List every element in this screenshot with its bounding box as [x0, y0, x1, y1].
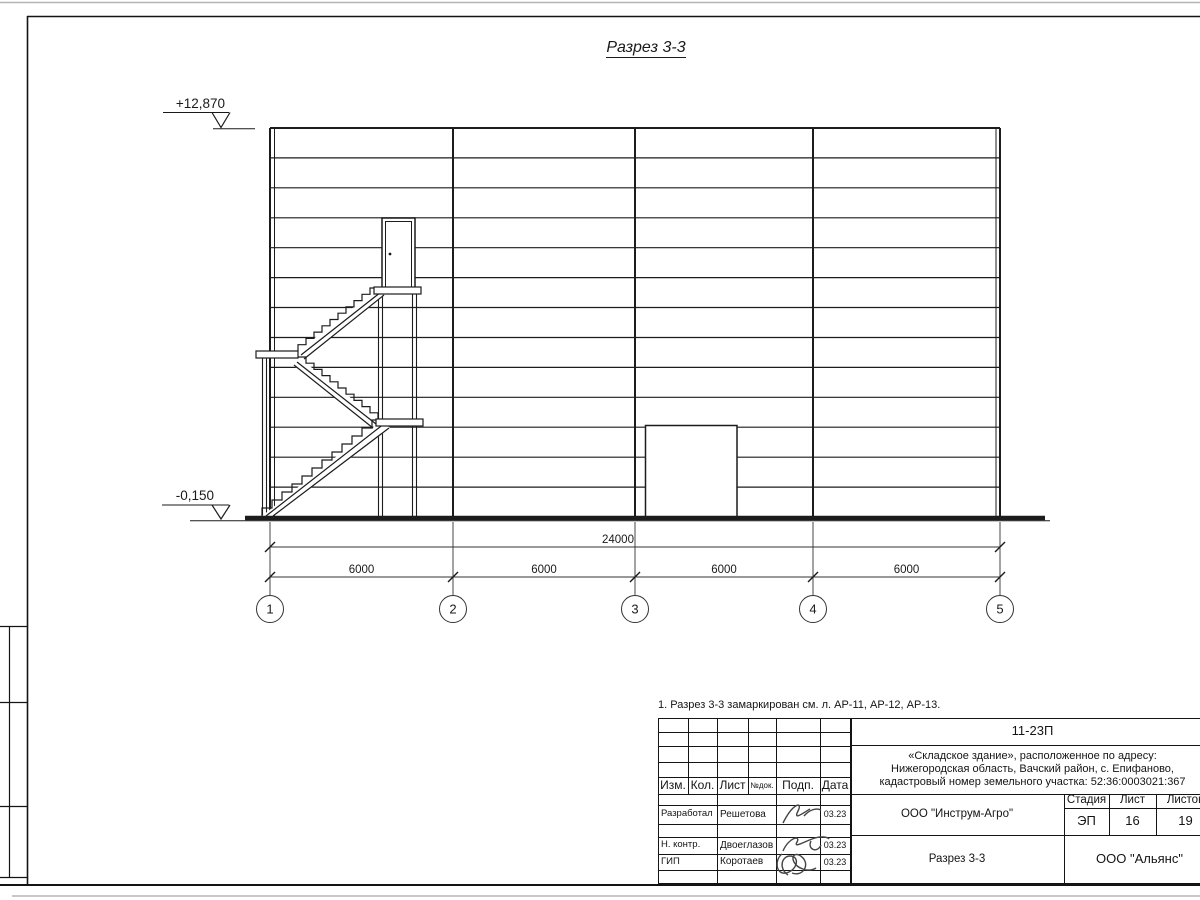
axis-bubbles: 1 2 3 4 5 [257, 596, 1014, 623]
dim-bay-label: 6000 [711, 564, 737, 576]
elevation-arrow [212, 505, 230, 519]
tb-stage-value: ЭП [1064, 808, 1109, 835]
tb-role: ГИП [658, 854, 717, 870]
dim-bay-label: 6000 [349, 564, 375, 576]
tb-name: Решетова [717, 805, 776, 824]
stair-stringer [304, 295, 384, 359]
extension-lines [270, 522, 1000, 595]
signature-korotaev [772, 848, 824, 880]
elevation-top-label: +12,870 [176, 96, 225, 111]
tb-project-line3: кадастровый номер земельного участка: 52… [879, 776, 1185, 789]
tb-role: Разработал [658, 805, 717, 824]
drawing-title: Разрез 3-3 [606, 39, 686, 58]
axis-label-3: 3 [631, 602, 638, 617]
tb-col-kol: Кол. [688, 777, 717, 794]
ground [190, 518, 1050, 521]
tb-stage-label: Стадия [1064, 794, 1109, 808]
drawing-title-text: Разрез 3-3 [606, 39, 685, 56]
stair-stringer [297, 362, 376, 424]
tb-org-bottom: ООО "Альянс" [1064, 835, 1200, 884]
axis-label-4: 4 [809, 602, 816, 617]
tb-role: Н. контр. [658, 837, 717, 854]
drawing-sheet: Разрез 3-3 [0, 0, 1200, 900]
tb-name: Двоеглазов [717, 837, 776, 854]
tb-project-line2: Нижегородская область, Вачский район, с.… [891, 763, 1174, 776]
dim-bay-label: 6000 [894, 564, 920, 576]
signature-reshetova [779, 799, 823, 827]
tb-col-podp: Подп. [776, 777, 820, 794]
stair-top-platform [374, 287, 421, 294]
stair-mid-landing [376, 419, 423, 426]
axis-label-2: 2 [449, 602, 456, 617]
elevation-arrow [212, 113, 230, 128]
stair-stringer [301, 292, 381, 355]
dimensions: 24000 6000 6000 6000 6000 [265, 522, 1005, 595]
building-wall [270, 128, 1000, 517]
axis-label-5: 5 [996, 602, 1003, 617]
door-handle [389, 253, 392, 256]
elevation-mark-top: +12,870 [163, 96, 255, 129]
tb-grid-line [658, 746, 850, 747]
dim-total-label: 24000 [602, 534, 634, 546]
elevation-mark-bottom: -0,150 [162, 488, 230, 519]
gate-opening [646, 426, 738, 518]
elevation-bottom-label: -0,150 [176, 488, 214, 503]
tb-col-data: Дата [820, 777, 850, 794]
axis-label-1: 1 [266, 602, 273, 617]
stair-stringer [273, 428, 389, 516]
tb-sheet-label: Лист [1109, 794, 1156, 808]
tb-sheet-value: 16 [1109, 808, 1156, 835]
tb-project-name: «Складское здание», расположенное по адр… [850, 745, 1200, 794]
tb-sheets-value: 19 [1156, 808, 1200, 835]
stair-left-landing [256, 351, 298, 358]
tb-sheets-label: Листов [1156, 794, 1200, 808]
tb-project-line1: «Складское здание», расположенное по адр… [908, 750, 1157, 763]
tb-grid-line [658, 732, 850, 733]
stair-stringer [294, 365, 373, 428]
dim-bay-label: 6000 [531, 564, 557, 576]
stair-steps-middle-flight [298, 357, 378, 419]
drawing-note: 1. Разрез 3-3 замаркирован см. л. АР-11,… [658, 699, 940, 711]
stair-stringer [266, 423, 385, 516]
tb-col-izm: Изм. [658, 777, 688, 794]
tb-col-ndok: №док. [748, 777, 776, 794]
tb-sheet-title: Разрез 3-3 [850, 835, 1064, 884]
tb-date: 03.23 [820, 805, 850, 824]
tb-org-top: ООО "Инструм-Агро" [850, 794, 1064, 835]
tb-grid-line [658, 762, 850, 763]
tb-col-list: Лист [717, 777, 748, 794]
tb-doc-number: 11-23П [850, 718, 1200, 745]
tb-name: Коротаев [717, 854, 776, 870]
